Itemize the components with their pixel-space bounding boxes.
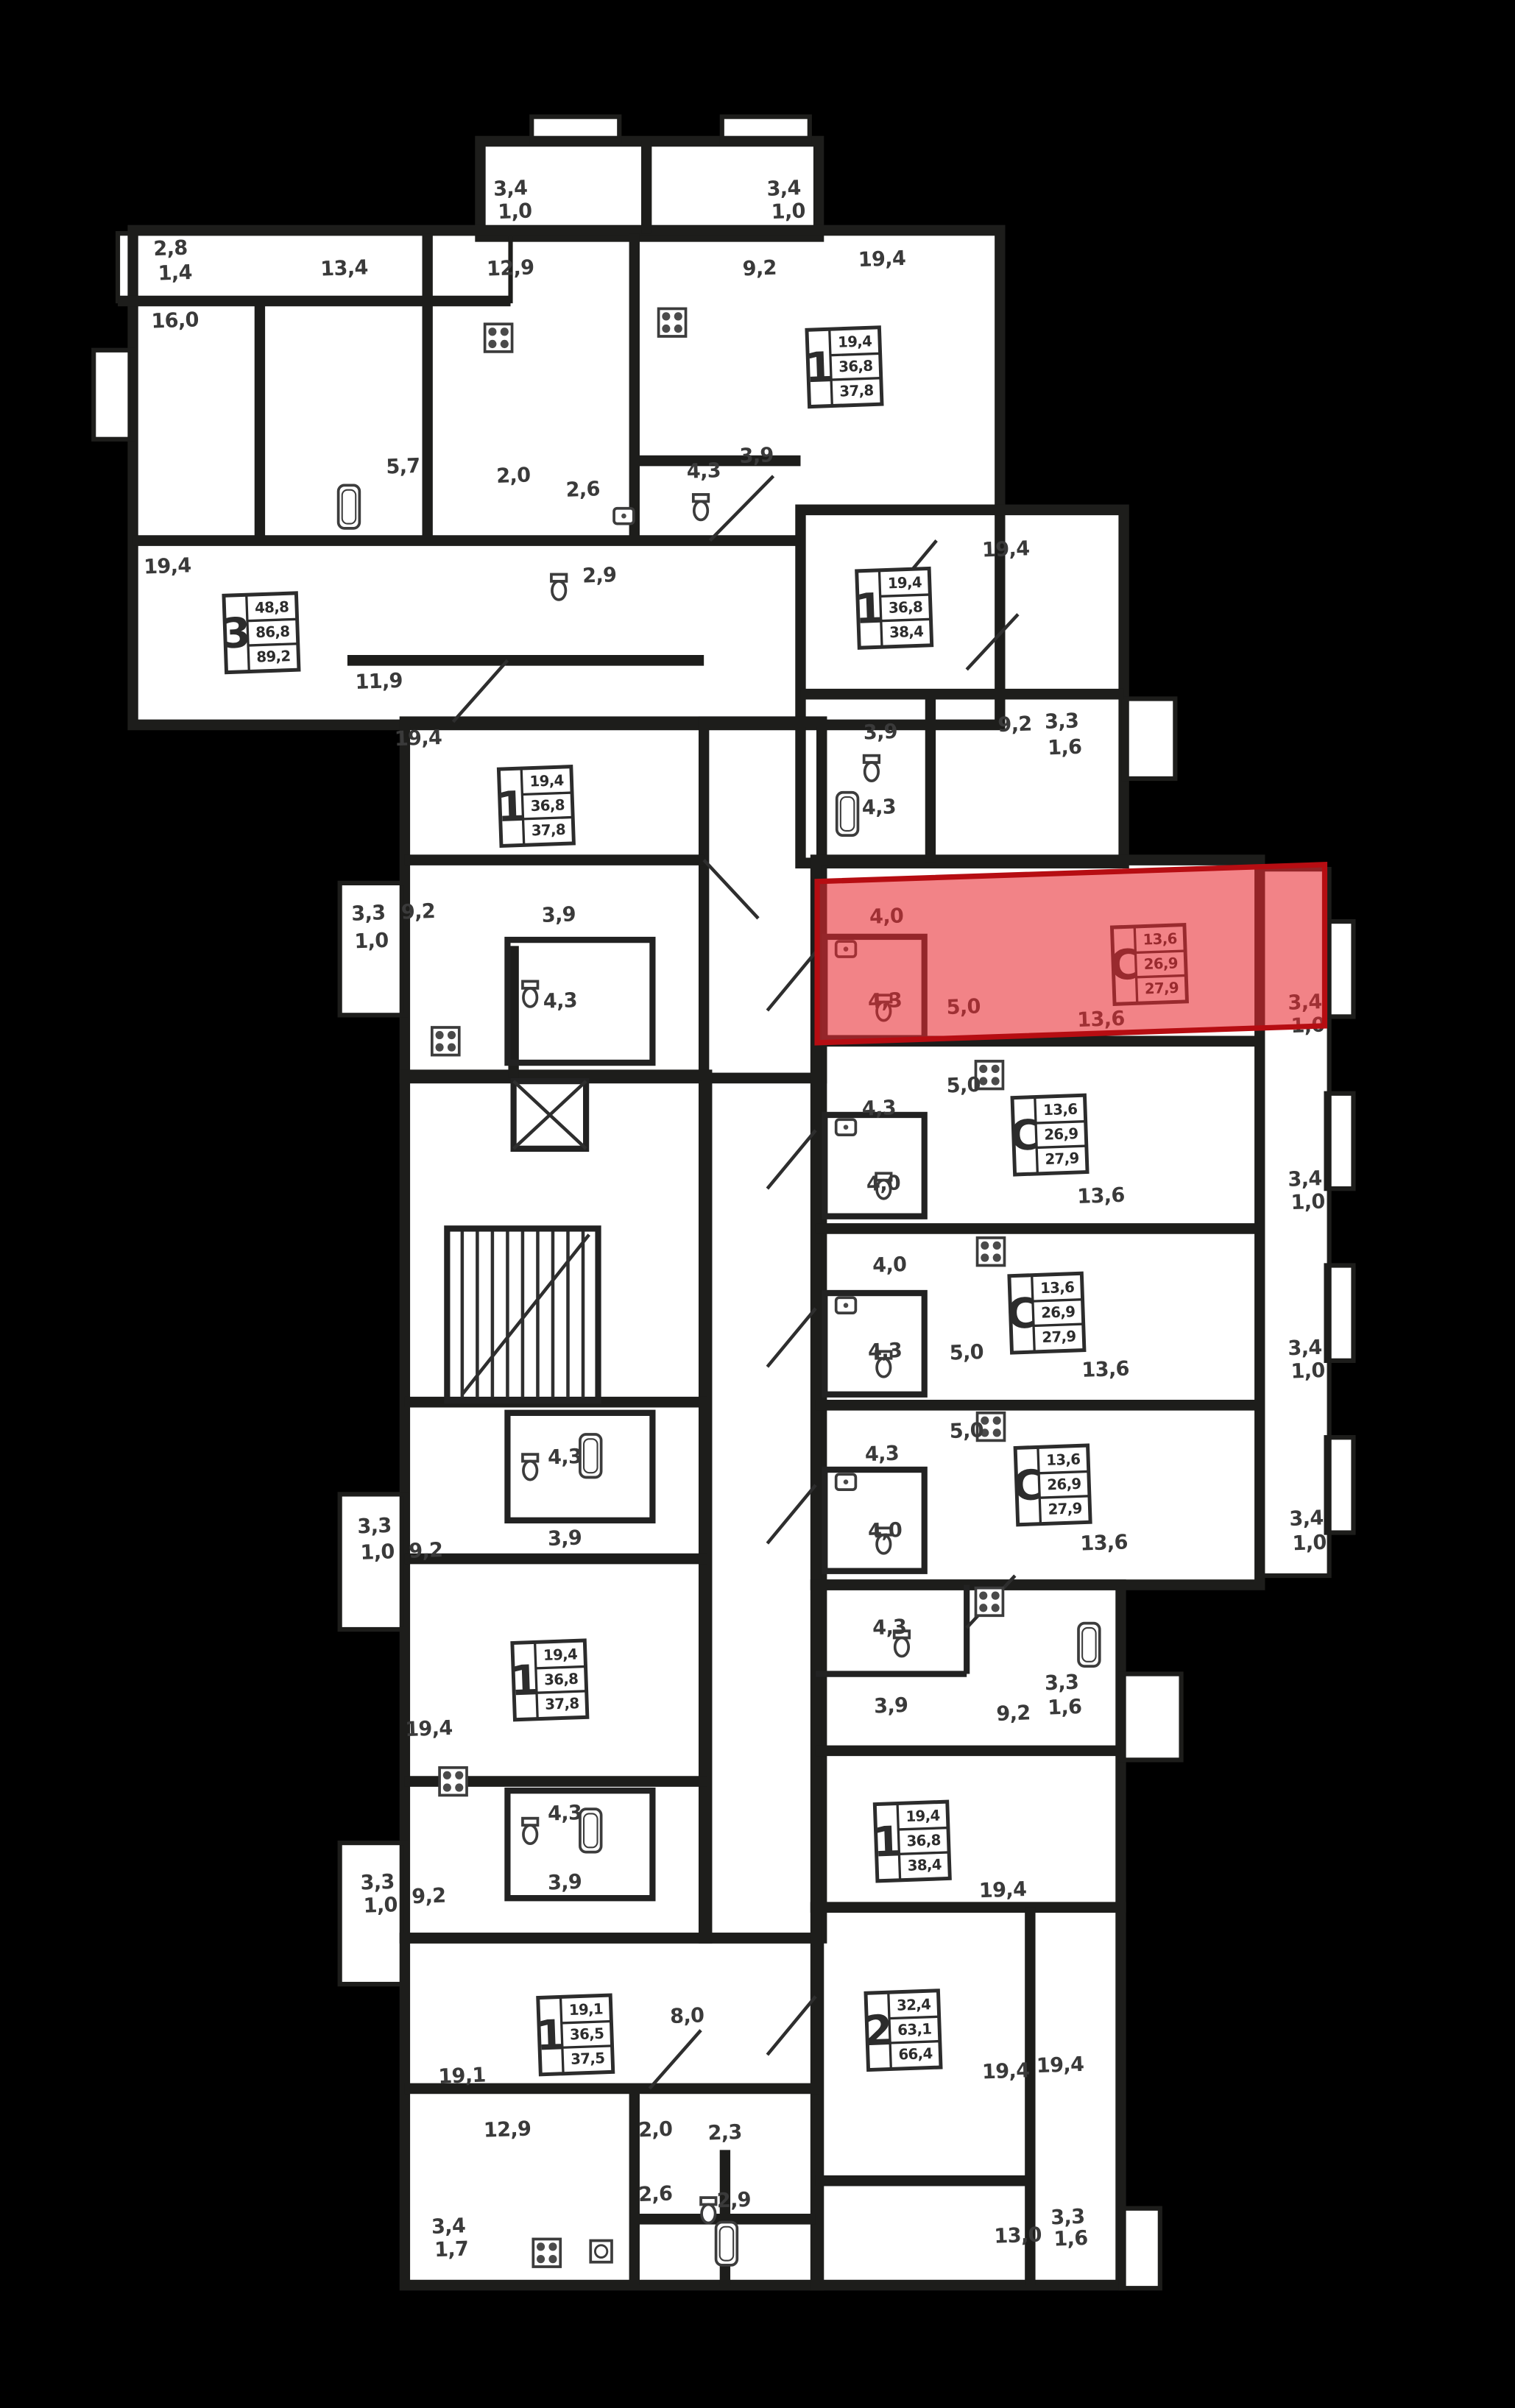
apartment-area-value: 19,1 (569, 2000, 604, 2019)
dimension-label: 3,9 (548, 1526, 582, 1551)
toilet-icon (551, 574, 567, 599)
stove-icon (533, 2239, 560, 2267)
toilet-icon (701, 2198, 716, 2223)
apartment-area-value: 66,4 (898, 2045, 933, 2064)
stove-icon (978, 1238, 1005, 1266)
dimension-label: 3,9 (874, 1694, 908, 1718)
dimension-label: 19,4 (858, 247, 905, 272)
apartment-type: 1 (496, 782, 526, 832)
dimension-label: 1,0 (360, 1540, 395, 1565)
dimension-label: 3,3 (351, 902, 386, 926)
dimension-label: 1,0 (1290, 1359, 1325, 1384)
dimension-label: 3,4 (766, 177, 801, 201)
sink-icon (614, 509, 634, 524)
dimension-label: 5,0 (949, 1419, 983, 1443)
dimension-label: 2,6 (565, 478, 600, 502)
dimension-label: 3,4 (431, 2214, 466, 2239)
apartment-type: 1 (872, 1818, 903, 1867)
apartment-area-value: 86,8 (255, 623, 290, 641)
dimension-label: 4,0 (868, 1519, 903, 1543)
dimension-label: 3,4 (493, 177, 528, 201)
dimension-label: 19,4 (1036, 2053, 1084, 2078)
dimension-label: 1,7 (434, 2237, 469, 2262)
dimension-label: 19,4 (405, 1717, 453, 1742)
apartment-info-box[interactable]: 119,436,837,8 (509, 1640, 587, 1720)
apartment-type: 1 (536, 2011, 566, 2061)
apartment-area-value: 36,8 (906, 1832, 941, 1850)
apartment-area-value: 27,9 (1045, 1150, 1079, 1168)
dimension-label: 1,6 (1048, 736, 1082, 760)
apartment-area-value: 37,5 (571, 2050, 605, 2068)
dimension-label: 1,6 (1048, 1696, 1082, 1720)
dimension-label: 2,9 (716, 2189, 751, 2213)
dimension-label: 3,4 (1288, 1336, 1322, 1360)
dimension-label: 4,3 (864, 1442, 899, 1466)
dimension-label: 3,3 (1045, 1671, 1079, 1695)
apartment-info-box[interactable]: 348,886,889,2 (221, 593, 299, 673)
apartment-type: 1 (854, 584, 884, 634)
dimension-label: 5,7 (386, 455, 420, 479)
dimension-label: 11,9 (355, 670, 403, 695)
bath-icon (339, 485, 360, 528)
apartment-area-value: 26,9 (1047, 1476, 1081, 1494)
dimension-label: 1,0 (498, 199, 532, 224)
apartment-area-value: 38,4 (889, 623, 924, 641)
apartment-area-value: 48,8 (255, 598, 289, 617)
stove-icon (432, 1027, 459, 1055)
apartment-area-value: 26,9 (1041, 1303, 1076, 1322)
dimension-label: 2,3 (707, 2121, 742, 2145)
apartment-area-value: 37,8 (839, 382, 874, 400)
dimension-label: 1,4 (158, 261, 192, 286)
dimension-label: 12,9 (487, 256, 534, 281)
dimension-label: 9,2 (412, 1884, 446, 1908)
dimension-label: 16,0 (151, 308, 199, 333)
dimension-label: 5,0 (946, 1074, 981, 1098)
sink-icon (836, 1474, 856, 1490)
dimension-label: 4,3 (861, 796, 896, 820)
apartment-info-box[interactable]: C13,626,927,9 (1009, 1095, 1087, 1175)
dimension-label: 4,3 (868, 1339, 903, 1364)
dimension-label: 19,4 (982, 537, 1030, 562)
apartment-type: C (1012, 1462, 1044, 1511)
dimension-label: 3,3 (360, 1871, 395, 1895)
dimension-label: 1,0 (1290, 1190, 1325, 1214)
bath-icon (837, 793, 858, 835)
dimension-label: 2,9 (582, 564, 617, 588)
dimension-label: 3,3 (1045, 709, 1079, 734)
apartment-area-value: 19,4 (905, 1807, 940, 1825)
toilet-icon (523, 1454, 538, 1479)
dimension-label: 9,2 (409, 1539, 443, 1563)
dimension-label: 12,9 (483, 2117, 531, 2142)
dimension-label: 4,3 (548, 1445, 582, 1470)
dimension-label: 19,4 (144, 554, 191, 579)
toilet-icon (864, 756, 880, 781)
dimension-label: 4,0 (866, 1172, 900, 1196)
apartment-info-box[interactable]: 119,436,838,4 (872, 1802, 950, 1881)
dimension-label: 4,3 (861, 1097, 896, 1121)
dimension-label: 13,0 (994, 2223, 1042, 2248)
apartment-area-value: 36,8 (544, 1671, 579, 1689)
apartment-info-box[interactable]: 119,436,837,8 (804, 327, 882, 407)
apartment-area-value: 38,4 (907, 1856, 942, 1874)
apartment-area-value: 36,5 (570, 2025, 604, 2044)
dimension-label: 13,6 (1080, 1531, 1128, 1556)
dimension-label: 13,4 (320, 256, 368, 281)
washer-icon (590, 2241, 612, 2262)
dimension-label: 4,3 (543, 989, 577, 1013)
apartment-area-value: 19,4 (529, 772, 564, 790)
dimension-label: 3,3 (1050, 2206, 1085, 2230)
dimension-label: 2,0 (638, 2118, 673, 2142)
bath-icon (716, 2223, 738, 2265)
dimension-label: 19,4 (978, 1878, 1026, 1903)
dimension-label: 1,6 (1053, 2227, 1088, 2251)
dimension-label: 1,0 (363, 1894, 398, 1918)
sink-icon (836, 1297, 856, 1313)
floor-plan-svg: 3,41,03,41,02,81,413,412,99,219,416,05,7… (0, 0, 1515, 2408)
dimension-label: 9,2 (997, 712, 1032, 737)
apartment-area-value: 37,8 (545, 1695, 579, 1713)
apartment-info-box[interactable]: 119,436,838,4 (854, 568, 932, 648)
dimension-label: 1,0 (354, 929, 389, 954)
apartment-area-value: 19,4 (838, 333, 872, 351)
toilet-icon (523, 1819, 538, 1844)
dimension-label: 3,4 (1288, 1167, 1322, 1191)
apartment-type: 1 (510, 1657, 540, 1706)
dimension-label: 3,9 (541, 903, 576, 927)
apartment-type: 2 (864, 2007, 894, 2056)
bath-icon (1078, 1623, 1100, 1666)
apartment-area-value: 19,4 (543, 1646, 578, 1664)
dimension-label: 2,0 (496, 464, 531, 488)
dimension-label: 2,8 (153, 236, 188, 261)
dimension-label: 19,1 (438, 2064, 486, 2089)
apartment-type: C (1009, 1111, 1041, 1161)
apartment-area-value: 13,6 (1040, 1279, 1075, 1297)
apartment-type: C (1006, 1289, 1038, 1339)
dimension-label: 3,3 (357, 1515, 392, 1539)
apartment-area-value: 27,9 (1048, 1500, 1082, 1518)
dimension-label: 3,9 (739, 444, 774, 468)
dimension-label: 4,3 (872, 1615, 907, 1640)
stove-icon (485, 324, 512, 352)
bath-icon (580, 1809, 601, 1852)
apartment-area-value: 19,4 (887, 574, 922, 592)
dimension-label: 4,3 (686, 459, 721, 484)
apartment-area-value: 13,6 (1046, 1451, 1081, 1469)
apartment-info-box[interactable]: 119,436,837,8 (496, 767, 574, 846)
sink-icon (836, 1119, 856, 1135)
apartment-info-box[interactable]: 119,136,537,5 (535, 1995, 613, 2075)
dimension-label: 5,0 (949, 1341, 983, 1365)
dimension-label: 13,6 (1077, 1184, 1125, 1209)
floor-plan: 3,41,03,41,02,81,413,412,99,219,416,05,7… (0, 0, 1515, 2408)
dimension-label: 13,6 (1081, 1357, 1129, 1382)
apartment-area-value: 32,4 (897, 1996, 931, 2014)
toilet-icon (523, 981, 538, 1006)
apartment-info-box[interactable]: C13,626,927,9 (1006, 1273, 1084, 1353)
apartment-info-box[interactable]: C13,626,927,9 (1011, 1445, 1090, 1525)
dimension-label: 9,2 (742, 257, 777, 281)
dimension-label: 3,9 (548, 1871, 582, 1895)
dimension-label: 19,4 (982, 2059, 1030, 2084)
apartment-type: 1 (805, 344, 835, 393)
apartment-area-value: 36,8 (530, 796, 565, 815)
apartment-type: 3 (222, 609, 252, 659)
apartment-info-box[interactable]: 232,463,166,4 (863, 1991, 941, 2070)
dimension-label: 19,4 (394, 726, 442, 751)
apartment-area-value: 63,1 (897, 2020, 932, 2039)
apartment-area-value: 27,9 (1042, 1328, 1076, 1346)
dimension-label: 3,9 (863, 720, 897, 745)
dimension-label: 3,4 (1289, 1506, 1324, 1531)
toilet-icon (693, 495, 709, 520)
dimension-label: 4,0 (872, 1253, 907, 1278)
stove-icon (439, 1768, 467, 1796)
stove-icon (975, 1588, 1003, 1616)
dimension-label: 8,0 (670, 2004, 704, 2028)
stove-icon (659, 308, 686, 336)
highlighted-apartment[interactable] (817, 865, 1324, 1043)
dimension-label: 9,2 (400, 900, 435, 924)
dimension-label: 1,0 (771, 199, 805, 224)
bath-icon (580, 1434, 601, 1477)
apartment-area-value: 89,2 (256, 648, 291, 666)
dimension-label: 4,3 (548, 1802, 582, 1826)
apartment-area-value: 26,9 (1044, 1125, 1078, 1144)
apartment-area-value: 13,6 (1043, 1100, 1078, 1119)
dimension-label: 9,2 (996, 1701, 1031, 1726)
dimension-label: 1,0 (1292, 1531, 1327, 1556)
apartment-area-value: 36,8 (889, 598, 923, 617)
apartment-area-value: 37,8 (531, 821, 565, 840)
dimension-label: 2,6 (638, 2182, 673, 2206)
apartment-area-value: 36,8 (838, 357, 873, 375)
